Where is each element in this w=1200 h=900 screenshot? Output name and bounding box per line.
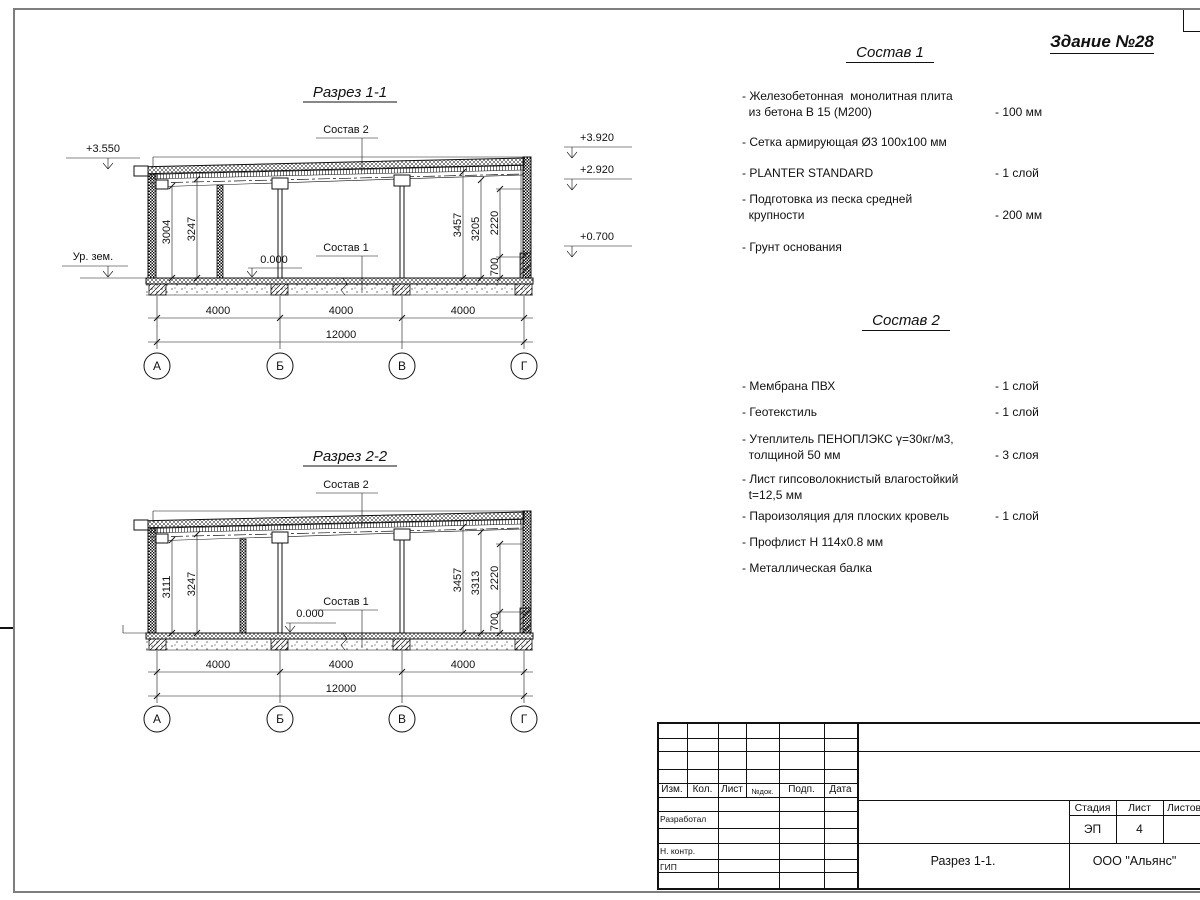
svg-text:4000: 4000 (206, 305, 230, 317)
level-zero-mark: 0.000 (285, 608, 336, 632)
sand-layer (146, 639, 533, 650)
col-header-ndok: №док. (746, 785, 779, 799)
row-label-razrabotal: Разработал (660, 812, 706, 827)
composition1-title: Состав 1 (846, 44, 934, 63)
floor-slab (146, 278, 533, 284)
svg-text:12000: 12000 (326, 683, 357, 695)
svg-text:Ур. зем.: Ур. зем. (73, 251, 113, 263)
svg-text:Г: Г (521, 359, 528, 373)
sections-drawing: Разрез 1-1 Состав 2 Состав 1 (0, 0, 660, 760)
footing (149, 284, 166, 295)
stage-header: Стадия (1069, 802, 1116, 815)
sheet-value: 4 (1116, 822, 1163, 836)
roof-edge-detail (134, 520, 148, 530)
axis-bubbles: А Б В Г (144, 706, 537, 732)
footing (271, 639, 288, 650)
format-box-corner (1183, 10, 1184, 32)
vertical-dims: 3111 3247 3457 3313 2220 700 (161, 524, 531, 636)
left-wall-bracket (156, 180, 168, 189)
material-item: - Грунт основания (742, 239, 992, 255)
material-value: - 200 мм (995, 207, 1042, 223)
col-header-izm: Изм. (657, 783, 687, 797)
stage-value: ЭП (1069, 822, 1116, 836)
svg-text:3004: 3004 (161, 220, 173, 244)
svg-text:А: А (153, 359, 161, 373)
column-b-capital (272, 532, 288, 543)
svg-text:2220: 2220 (489, 566, 501, 590)
callout-sostav1: Состав 1 (323, 242, 369, 254)
composition2-title: Состав 2 (862, 312, 950, 331)
section-2-2-title: Разрез 2-2 (313, 448, 388, 465)
footing (271, 284, 288, 295)
drawing-sheet: { "page": { "building_label": "Здание №2… (0, 0, 1200, 900)
material-item: - Подготовка из песка средней крупности (742, 191, 992, 223)
row-label-nkontr: Н. контр. (660, 844, 695, 859)
composition1-list: - Железобетонная монолитная плита из бет… (742, 88, 1062, 268)
material-item: - Металлическая балка (742, 560, 992, 576)
svg-text:0.000: 0.000 (296, 608, 324, 620)
elev-3550: +3.550 (66, 143, 140, 169)
svg-text:3247: 3247 (186, 572, 198, 596)
material-value: - 1 слой (995, 404, 1039, 420)
material-value: - 3 слоя (995, 447, 1039, 463)
svg-text:+2.920: +2.920 (580, 164, 614, 176)
svg-text:Б: Б (276, 359, 284, 373)
col-header-data: Дата (824, 783, 857, 797)
material-value: - 1 слой (995, 508, 1039, 524)
title-block: Изм. Кол. Лист №док. Подп. Дата Разработ… (657, 722, 1200, 892)
building-label: Здание №28 (1050, 32, 1154, 54)
material-item: - Сетка армирующая Ø3 100х100 мм (742, 134, 992, 150)
svg-text:12000: 12000 (326, 329, 357, 341)
doc-title: Разрез 1-1. (857, 854, 1069, 868)
left-wall (148, 528, 156, 633)
material-item: - Пароизоляция для плоских кровель (742, 508, 992, 524)
sheets-header: Листов (1167, 802, 1200, 815)
floor-slab (146, 633, 533, 639)
svg-text:+3.920: +3.920 (580, 132, 614, 144)
horizontal-dims: 4000 4000 4000 12000 (148, 651, 533, 703)
svg-text:700: 700 (489, 613, 501, 631)
col-header-podp: Подп. (779, 783, 824, 797)
vertical-dims: 3004 3247 3457 3205 2220 700 (161, 169, 531, 281)
material-item: - Лист гипсоволокнистый влагостойкий t=1… (742, 471, 992, 503)
svg-text:3111: 3111 (161, 576, 173, 599)
composition2-heading: Состав 2 (862, 312, 950, 331)
section-1-1: Разрез 1-1 Состав 2 Состав 1 (62, 84, 632, 379)
axis-bubbles: А Б В Г (144, 353, 537, 379)
col-header-list: Лист (718, 783, 746, 797)
column-v-capital (394, 529, 410, 540)
svg-text:Г: Г (521, 712, 528, 726)
elev-0700: +0.700 (564, 231, 632, 257)
material-value: - 1 слой (995, 165, 1039, 181)
svg-text:В: В (398, 359, 406, 373)
col-header-kol: Кол. (687, 783, 718, 797)
material-item: - Профлист Н 114х0.8 мм (742, 534, 992, 550)
partition-wall (240, 539, 246, 633)
composition1-heading: Состав 1 (846, 44, 934, 63)
callout-sostav2: Состав 2 (323, 124, 369, 136)
partition-wall (217, 185, 223, 278)
building-label-text: Здание №28 (1050, 32, 1154, 54)
elev-3920: +3.920 (564, 132, 632, 158)
elev-2920: +2.920 (564, 164, 632, 190)
svg-text:Б: Б (276, 712, 284, 726)
svg-text:+0.700: +0.700 (580, 231, 614, 243)
ground-level-mark: Ур. зем. (62, 251, 128, 277)
column-v-capital (394, 175, 410, 186)
svg-text:4000: 4000 (451, 659, 475, 671)
horizontal-dims: 4000 4000 4000 12000 (148, 296, 533, 349)
svg-text:3457: 3457 (452, 213, 464, 237)
footing (149, 639, 166, 650)
left-wall-bracket (156, 534, 168, 543)
format-box-corner-h (1183, 31, 1200, 32)
svg-text:3205: 3205 (470, 217, 482, 241)
section-1-1-title: Разрез 1-1 (313, 84, 387, 101)
footing (393, 284, 410, 295)
svg-text:3247: 3247 (186, 217, 198, 241)
svg-text:+3.550: +3.550 (86, 143, 120, 155)
svg-text:4000: 4000 (206, 659, 230, 671)
material-item: - Железобетонная монолитная плита из бет… (742, 88, 992, 120)
left-wall (148, 174, 156, 278)
sand-layer (146, 284, 533, 295)
callout-sostav2: Состав 2 (323, 479, 369, 491)
footing (393, 639, 410, 650)
material-item: - Утеплитель ПЕНОПЛЭКС γ=30кг/м3, толщин… (742, 431, 992, 463)
svg-text:4000: 4000 (329, 659, 353, 671)
company-name: ООО "Альянс" (1069, 854, 1200, 868)
footing (515, 284, 532, 295)
material-item: - Геотекстиль (742, 404, 992, 420)
column-b-capital (272, 178, 288, 189)
roof-edge-detail (134, 166, 148, 176)
svg-text:0.000: 0.000 (260, 254, 288, 266)
material-item: - Мембрана ПВХ (742, 378, 992, 394)
svg-text:2220: 2220 (489, 211, 501, 235)
svg-text:700: 700 (489, 258, 501, 276)
material-value: - 1 слой (995, 378, 1039, 394)
row-label-gip: ГИП (660, 860, 677, 875)
callout-sostav1: Состав 1 (323, 596, 369, 608)
composition2-list: - Мембрана ПВХ - 1 слой - Геотекстиль - … (742, 378, 1062, 588)
svg-text:3313: 3313 (470, 571, 482, 595)
material-value: - 100 мм (995, 104, 1042, 120)
section-2-2: Разрез 2-2 Состав 2 Состав 1 0. (123, 448, 537, 732)
level-zero-mark: 0.000 (247, 254, 302, 277)
svg-text:А: А (153, 712, 161, 726)
footing (515, 639, 532, 650)
sheet-header: Лист (1116, 802, 1163, 815)
svg-text:4000: 4000 (451, 305, 475, 317)
material-item: - PLANTER STANDARD (742, 165, 992, 181)
svg-text:В: В (398, 712, 406, 726)
svg-text:4000: 4000 (329, 305, 353, 317)
svg-text:3457: 3457 (452, 568, 464, 592)
